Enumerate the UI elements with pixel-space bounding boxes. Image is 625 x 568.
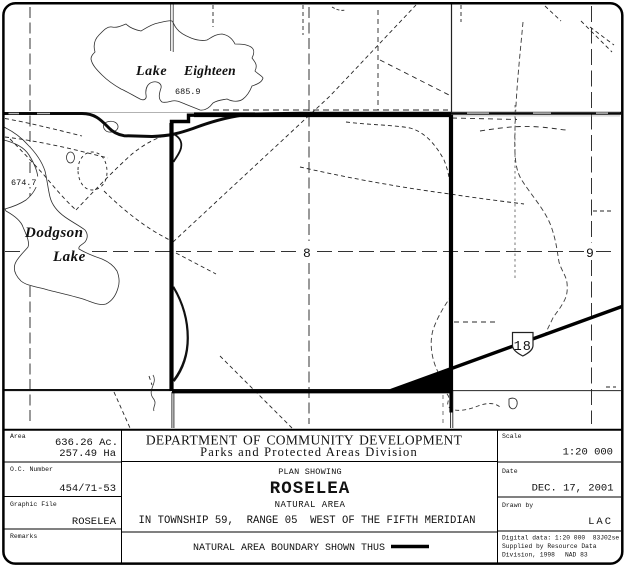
svg-text:8: 8 bbox=[303, 246, 311, 261]
svg-text:Drawn by: Drawn by bbox=[502, 502, 533, 509]
svg-text:Digital data: 1:20 000 83J02s: Digital data: 1:20 000 83J02se bbox=[502, 535, 619, 542]
svg-text:Date: Date bbox=[502, 468, 518, 475]
svg-text:Lake: Lake bbox=[52, 249, 86, 265]
svg-text:NAD 83: NAD 83 bbox=[565, 552, 588, 559]
svg-text:Remarks: Remarks bbox=[10, 533, 37, 540]
svg-text:674.7: 674.7 bbox=[11, 178, 37, 188]
svg-text:Dodgson: Dodgson bbox=[24, 225, 84, 241]
svg-text:257.49 Ha: 257.49 Ha bbox=[59, 448, 116, 460]
svg-text:Supplied by Resource Data: Supplied by Resource Data bbox=[502, 543, 597, 550]
svg-text:454/71-53: 454/71-53 bbox=[59, 483, 116, 495]
svg-text:9: 9 bbox=[586, 246, 594, 261]
svg-text:Parks and Protected Areas Divi: Parks and Protected Areas Division bbox=[200, 445, 418, 459]
svg-text:NATURAL AREA: NATURAL AREA bbox=[275, 500, 346, 510]
svg-text:1:20 000: 1:20 000 bbox=[563, 447, 613, 459]
svg-text:NATURAL AREA BOUNDARY SHOWN TH: NATURAL AREA BOUNDARY SHOWN THUS bbox=[193, 543, 385, 554]
svg-text:O.C. Number: O.C. Number bbox=[10, 466, 53, 473]
svg-text:LAC: LAC bbox=[588, 516, 613, 528]
svg-text:Graphic File: Graphic File bbox=[10, 501, 57, 508]
svg-text:Area: Area bbox=[10, 433, 26, 440]
svg-text:685.9: 685.9 bbox=[175, 87, 201, 97]
svg-text:DEC. 17, 2001: DEC. 17, 2001 bbox=[532, 483, 614, 495]
svg-text:Eighteen: Eighteen bbox=[183, 63, 236, 78]
svg-text:ROSELEA: ROSELEA bbox=[270, 479, 351, 499]
svg-text:Scale: Scale bbox=[502, 433, 522, 440]
svg-text:18: 18 bbox=[514, 340, 532, 355]
svg-text:Division, 1998: Division, 1998 bbox=[502, 552, 555, 559]
svg-text:Lake: Lake bbox=[135, 64, 167, 79]
svg-text:PLAN SHOWING: PLAN SHOWING bbox=[278, 467, 342, 477]
svg-text:IN TOWNSHIP 59, RANGE 05 WES: IN TOWNSHIP 59, RANGE 05 WEST OF THE FIF… bbox=[139, 515, 476, 527]
svg-text:ROSELEA: ROSELEA bbox=[72, 516, 117, 528]
